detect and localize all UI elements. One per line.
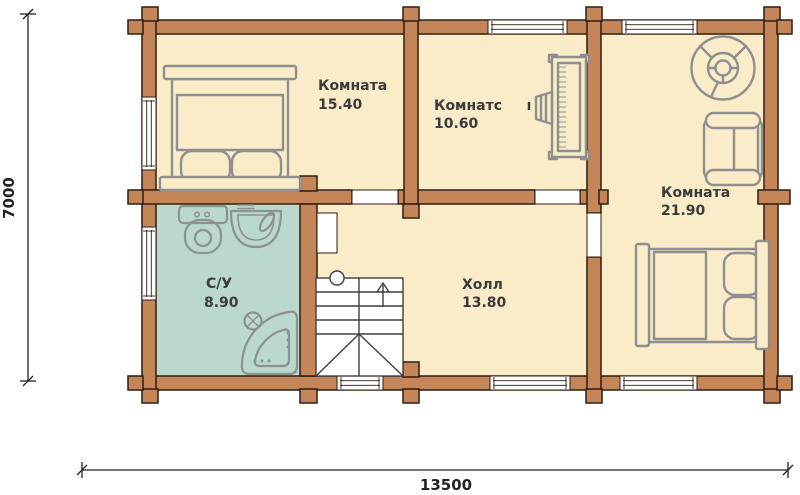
log-stub (128, 20, 143, 34)
window-bottom-hall (490, 376, 570, 390)
log-stub (142, 389, 158, 403)
wall-hall-room3-lower (587, 257, 601, 390)
hall-name: Холл (462, 277, 503, 293)
room-3-name: Комната (661, 185, 730, 201)
door-hall-room1 (352, 190, 398, 204)
room-3-area: 21.90 (661, 203, 706, 219)
log-stub (777, 20, 792, 34)
log-stub (128, 376, 143, 390)
bathroom-area: 8.90 (204, 295, 239, 311)
log-stub (403, 204, 419, 218)
wall-mid-seg1 (142, 190, 352, 204)
log-stub (403, 362, 419, 377)
staircase-icon (316, 271, 403, 376)
window-left-bathroom (142, 227, 156, 300)
door-hall-room3 (587, 213, 601, 257)
wall-bathroom (300, 204, 317, 376)
dimension-width-label: 13500 (420, 476, 472, 494)
log-stub (300, 389, 317, 403)
log-stub (403, 389, 419, 403)
door-bathroom-leaf (317, 213, 337, 253)
log-stub (128, 190, 143, 204)
room-1-area: 15.40 (318, 97, 363, 113)
log-stub (758, 190, 790, 204)
log-stub (764, 389, 780, 403)
dimension-height-label: 7000 (0, 177, 18, 219)
room-1-name: Комната (318, 78, 387, 94)
window-bottom-room3 (620, 376, 697, 390)
room-2-area: 10.60 (434, 116, 479, 132)
log-stub (586, 7, 602, 21)
floor-plan-page: Комната 15.40 Комнатс 10.60 Комната 21.9… (0, 0, 800, 495)
stair-newel-post (330, 271, 344, 285)
room-2-name: Комнатс (434, 98, 502, 114)
bathroom-name: С/У (206, 276, 232, 292)
floor-plan-drawing: Комната 15.40 Комнатс 10.60 Комната 21.9… (0, 0, 800, 495)
log-stub (586, 389, 602, 403)
window-left-room1 (142, 97, 156, 170)
window-top-1 (488, 20, 567, 34)
log-stub (300, 176, 317, 191)
door-hall-room2 (535, 190, 580, 204)
wall-left (142, 20, 156, 390)
log-stub (764, 7, 780, 21)
hall-area: 13.80 (462, 295, 507, 311)
wall-hall-room3-upper (587, 20, 601, 213)
dimension-left: 7000 (0, 9, 36, 386)
window-top-2 (622, 20, 697, 34)
dimension-bottom: 13500 (77, 462, 793, 494)
log-stub (599, 190, 608, 204)
log-stub (777, 376, 792, 390)
window-bottom-stairs (337, 376, 383, 390)
wall-room1-room2 (404, 20, 418, 204)
log-stub (142, 7, 158, 21)
log-stub (403, 7, 419, 21)
armchair-icon (704, 113, 762, 185)
